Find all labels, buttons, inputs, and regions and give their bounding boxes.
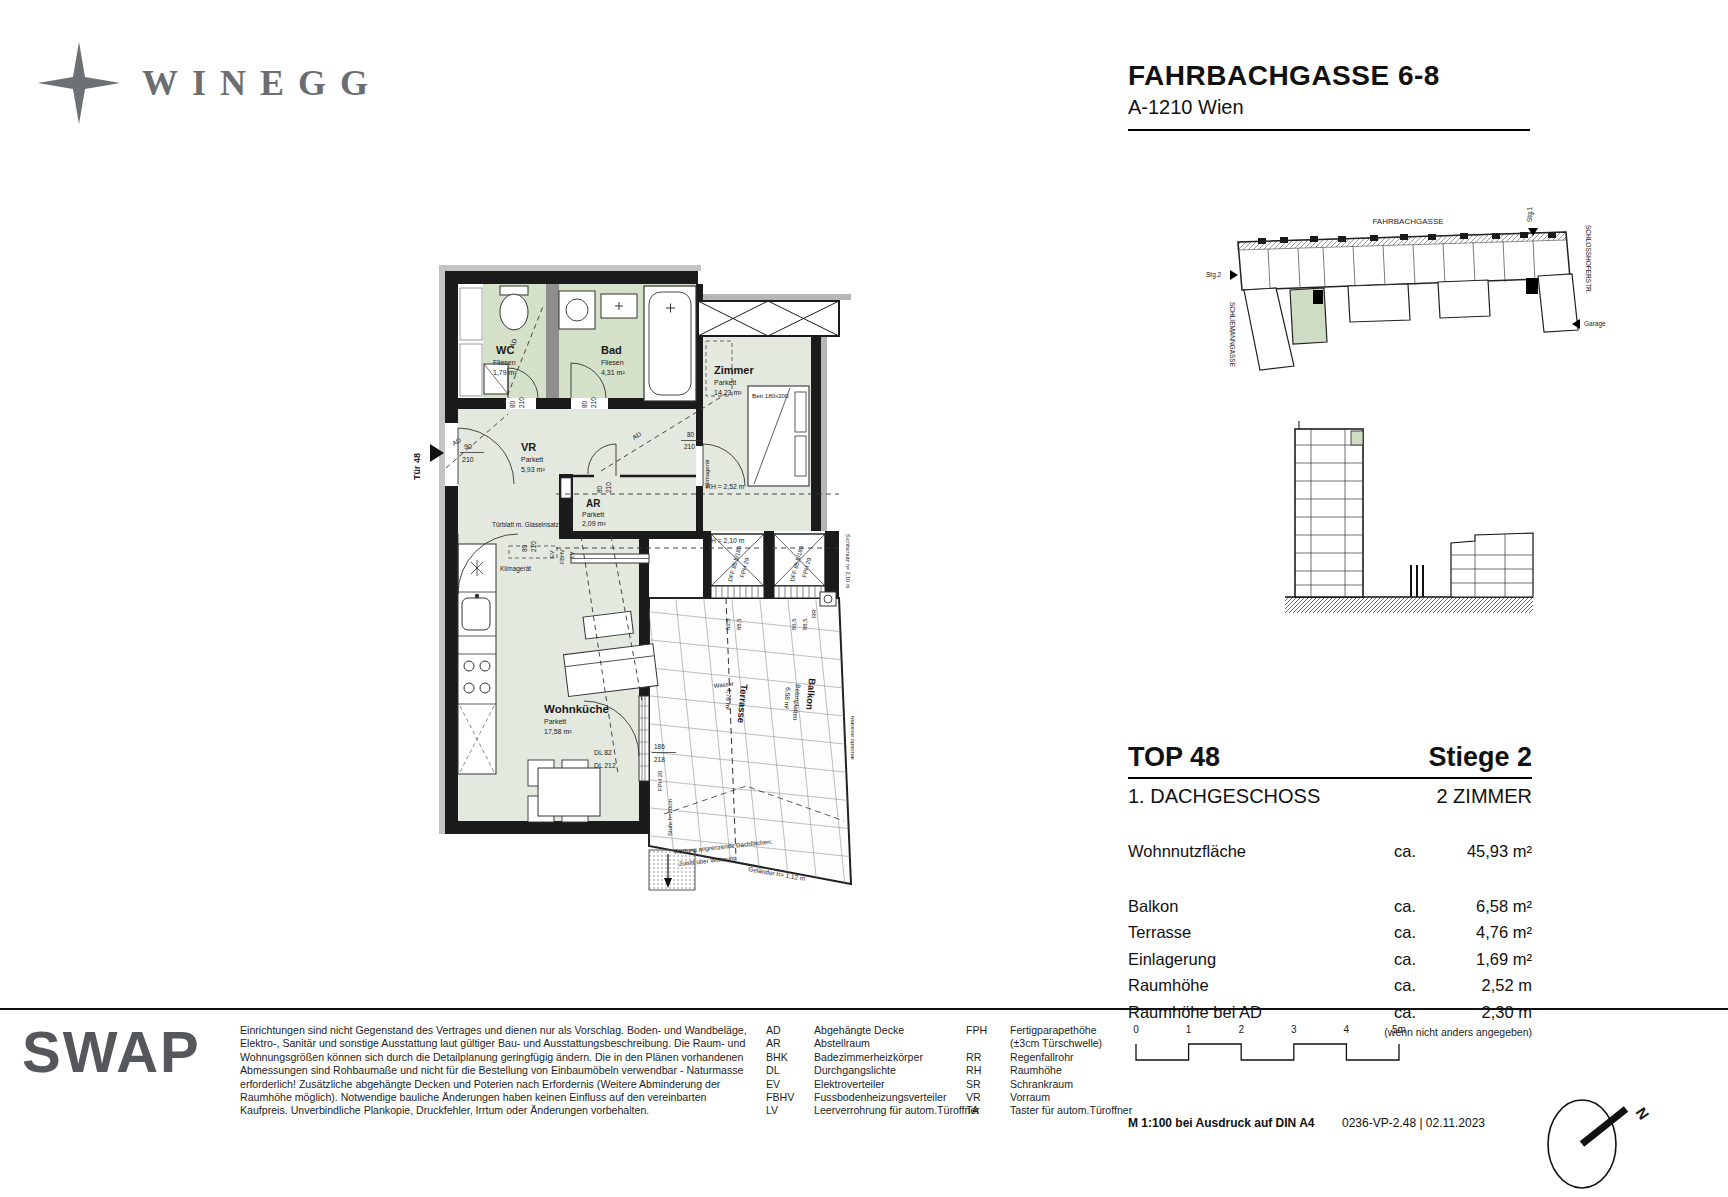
company-logo: WINEGG bbox=[36, 40, 382, 126]
dim-218: 218 bbox=[654, 756, 665, 763]
area-row: Raumhöhe ca. 2,52 m bbox=[1128, 972, 1532, 999]
dl82-label: DL 82 bbox=[594, 749, 612, 756]
door-dim: 210 bbox=[605, 482, 612, 493]
swap-logo: SWAP bbox=[22, 1018, 201, 1085]
scale-bar: 0 1 2 3 4 5m bbox=[1128, 1020, 1428, 1075]
winegg-star-icon bbox=[36, 40, 122, 126]
area-ca: ca. bbox=[1394, 919, 1446, 946]
door-dim: 210 bbox=[590, 397, 597, 408]
unit-number: TOP 48 bbox=[1128, 742, 1220, 773]
markise-label: Markise optional bbox=[850, 716, 854, 760]
site-street-top: FAHRBACHGASSE bbox=[1372, 217, 1443, 226]
bathtub bbox=[644, 286, 696, 401]
door-dim: 210 bbox=[530, 541, 537, 552]
scale-tick: 0 bbox=[1133, 1024, 1139, 1035]
area-ca: ca. bbox=[1394, 972, 1446, 999]
site-garage: Garage bbox=[1584, 320, 1606, 328]
legend-text: Schrankraum bbox=[1010, 1078, 1180, 1091]
room-label-vr: VR bbox=[521, 441, 536, 453]
stair-number: Stiege 2 bbox=[1428, 742, 1532, 773]
site-street-right: SCHLOSSHOFERSTR. bbox=[1585, 225, 1592, 294]
room-label-bad: Bad bbox=[601, 344, 622, 356]
room-area-vr: 5,93 m² bbox=[521, 466, 545, 473]
legend-abbr: AR bbox=[766, 1037, 814, 1050]
area-value: 2,52 m bbox=[1446, 972, 1532, 999]
entry-dim-w: 90 bbox=[464, 443, 472, 450]
area-label: Balkon bbox=[1128, 893, 1394, 920]
legend-abbr: AD bbox=[766, 1024, 814, 1037]
room-floor-vr: Parkett bbox=[521, 456, 543, 463]
stg2-arrow-icon bbox=[1230, 270, 1238, 280]
toilet bbox=[500, 294, 528, 330]
legend-abbr: SR bbox=[966, 1078, 1010, 1091]
document-reference: 0236-VP-2.48 | 02.11.2023 bbox=[1342, 1116, 1485, 1130]
scale-tick: 5m bbox=[1392, 1024, 1406, 1035]
scale-tick: 4 bbox=[1344, 1024, 1350, 1035]
site-stg2: Stg.2 bbox=[1206, 271, 1222, 279]
legend-text: Leerverrohrung für autom.Türoffner bbox=[814, 1104, 980, 1117]
legend-abbr: FPH bbox=[966, 1024, 1010, 1051]
project-title: FAHRBACHGASSE 6-8 bbox=[1128, 60, 1530, 92]
area-value: 45,93 m² bbox=[1446, 838, 1532, 865]
skylight-dff bbox=[774, 534, 825, 598]
room-label-ar: AR bbox=[586, 498, 601, 509]
area-row: Wohnnutzfläche ca. 45,93 m² bbox=[1128, 838, 1532, 865]
legend-abbr: RH bbox=[966, 1064, 1010, 1077]
ev-label: EV bbox=[549, 550, 555, 558]
room-floor-ar: Parkett bbox=[582, 511, 604, 518]
scale-tick: 2 bbox=[1238, 1024, 1244, 1035]
area-label: Terrasse bbox=[1128, 919, 1394, 946]
area-value: 1,69 m² bbox=[1446, 946, 1532, 973]
legend-text: Vorraum bbox=[1010, 1091, 1180, 1104]
door-dim: 80 bbox=[509, 400, 516, 408]
door-glass-label: Türblatt m. Glaseinsatz bbox=[492, 521, 559, 528]
area-row: Balkon ca. 6,58 m² bbox=[1128, 893, 1532, 920]
legend-text2: (±3cm Türschwelle) bbox=[1010, 1037, 1102, 1049]
section-highlighted-unit bbox=[1351, 431, 1363, 445]
dim-865: 86,5 bbox=[725, 618, 731, 630]
room-floor-bad: Fliesen bbox=[601, 359, 624, 366]
area-label: Raumhöhe bbox=[1128, 972, 1394, 999]
logo-text: WINEGG bbox=[142, 62, 382, 104]
room-area-ar: 2,09 m² bbox=[582, 520, 606, 527]
room-floor-zimmer: Parkett bbox=[714, 379, 736, 386]
washing-machine bbox=[559, 291, 595, 329]
ac-label: Klimagerät bbox=[500, 565, 531, 573]
legend-abbr: BHK bbox=[766, 1051, 814, 1064]
room-area-wohnkueche: 17,58 m² bbox=[544, 728, 572, 735]
terrace-door bbox=[639, 696, 649, 781]
site-street-left: SCHLIEMANNGASSE bbox=[1229, 302, 1236, 368]
legend-abbr: DL bbox=[766, 1064, 814, 1077]
stufe-label: Stufe h=20cm bbox=[667, 799, 673, 836]
legend-abbr: EV bbox=[766, 1078, 814, 1091]
scale-tick: 3 bbox=[1291, 1024, 1297, 1035]
legend-left: ADAbgehängte Decke ARAbstellraum BHKBade… bbox=[766, 1024, 980, 1118]
door-dim: 80 bbox=[596, 485, 603, 493]
legend-abbr: TA bbox=[966, 1104, 1010, 1117]
area-label: Einlagerung bbox=[1128, 946, 1394, 973]
legend-abbr: FBHV bbox=[766, 1091, 814, 1104]
fph20-label: FPH 20 bbox=[657, 770, 663, 791]
dim-186: 186 bbox=[654, 743, 665, 750]
sichtschutz-label: Sichtschutz h= 2,10 m bbox=[845, 534, 851, 589]
area-value: 4,76 m² bbox=[1446, 919, 1532, 946]
area-value: 6,58 m² bbox=[1446, 893, 1532, 920]
dim-885: 88,5 bbox=[736, 618, 742, 630]
legend-text: Elektroverteiler bbox=[814, 1078, 885, 1091]
door-dim: 80 bbox=[581, 400, 588, 408]
fbhv-label: FBHV bbox=[559, 549, 565, 564]
room-label-wohnkueche: Wohnküche bbox=[544, 703, 609, 715]
unit-info-panel: TOP 48 Stiege 2 1. DACHGESCHOSS 2 ZIMMER… bbox=[1128, 742, 1532, 1038]
door-dim: 210 bbox=[684, 443, 695, 450]
door-dim: 80 bbox=[521, 544, 528, 552]
legend-text: Durchgangslichte bbox=[814, 1064, 896, 1077]
room-area-wc: 1,79 m² bbox=[493, 369, 517, 376]
entry-door-label: Tür 48 bbox=[412, 453, 422, 480]
legend-abbr: RR bbox=[966, 1051, 1010, 1064]
entry-dim-h: 210 bbox=[462, 456, 474, 463]
north-letter: N bbox=[1633, 1104, 1653, 1123]
print-scale-note: M 1:100 bei Ausdruck auf DIN A4 bbox=[1128, 1116, 1315, 1130]
project-header: FAHRBACHGASSE 6-8 A-1210 Wien bbox=[1128, 60, 1530, 131]
site-stg1: Stg.1 bbox=[1526, 206, 1534, 222]
dim-865: 86,5 bbox=[791, 618, 797, 630]
legend-text: Badezimmerheizkörper bbox=[814, 1051, 923, 1064]
area-ca: ca. bbox=[1394, 838, 1446, 865]
rh-high-label: RH = 2,52 m bbox=[706, 483, 745, 490]
area-ca: ca. bbox=[1394, 946, 1446, 973]
bed bbox=[748, 386, 809, 486]
door-dim: 80 bbox=[687, 431, 695, 438]
footer: SWAP Einrichtungen sind nicht Gegenstand… bbox=[0, 1008, 1728, 1197]
rh-low-label: RH = 2,10 m bbox=[706, 537, 745, 544]
legend-text: Fertigparapethöhe bbox=[1010, 1024, 1097, 1036]
rr-label: RR bbox=[811, 609, 817, 618]
dim-885: 88,5 bbox=[802, 618, 808, 630]
kitchen-sink bbox=[462, 598, 490, 630]
legend-abbr: VR bbox=[966, 1091, 1010, 1104]
legend-text: Abgehängte Decke bbox=[814, 1024, 904, 1037]
area-row: Terrasse ca. 4,76 m² bbox=[1128, 919, 1532, 946]
legend-text: Fussbodenheizungsverteiler bbox=[814, 1091, 947, 1104]
room-floor-wohnkueche: Parkett bbox=[544, 718, 566, 725]
floor-plan: WC Fliesen 1,79 m² Bad Fliesen 4,31 m² Z… bbox=[396, 246, 854, 906]
room-area-bad: 4,31 m² bbox=[601, 369, 625, 376]
floor-name: 1. DACHGESCHOSS bbox=[1128, 785, 1320, 808]
door-dim: 210 bbox=[518, 397, 525, 408]
project-subtitle: A-1210 Wien bbox=[1128, 96, 1530, 119]
building-section bbox=[1215, 415, 1535, 620]
site-plan: FAHRBACHGASSE Stg.1 SCHLOSSHOFERSTR. Stg… bbox=[1108, 170, 1728, 375]
lv-label: LV bbox=[569, 551, 575, 558]
area-row: Einlagerung ca. 1,69 m² bbox=[1128, 946, 1532, 973]
north-compass: N bbox=[1538, 1092, 1668, 1197]
room-area-zimmer: 14,23 m² bbox=[714, 389, 742, 396]
legend-text: Abstellraum bbox=[814, 1037, 870, 1050]
room-count: 2 ZIMMER bbox=[1436, 785, 1532, 808]
scale-tick: 1 bbox=[1186, 1024, 1192, 1035]
dining-set bbox=[528, 760, 600, 822]
bed-label: Bett 180x200 bbox=[752, 392, 789, 399]
dl212-label: DL 212 bbox=[594, 762, 616, 769]
disclaimer-text: Einrichtungen sind nicht Gegenstand des … bbox=[240, 1024, 756, 1118]
ac-label: Klimagerät bbox=[704, 459, 710, 488]
room-label-zimmer: Zimmer bbox=[714, 364, 754, 376]
area-ca: ca. bbox=[1394, 893, 1446, 920]
area-label: Wohnnutzfläche bbox=[1128, 838, 1394, 865]
legend-abbr: LV bbox=[766, 1104, 814, 1117]
room-floor-wc: Fliesen bbox=[493, 359, 516, 366]
